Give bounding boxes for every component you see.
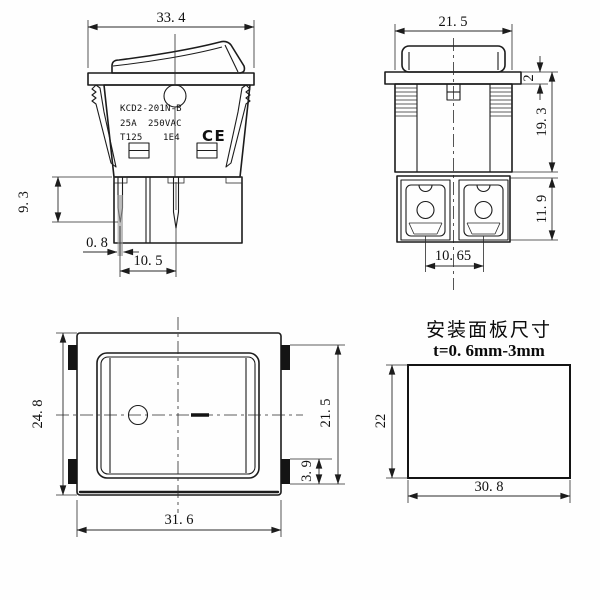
side-view: 33. 4 KCD2-201N-B 25A 250VAC T125 1E4 CE — [16, 10, 254, 277]
dim-top-height: 24. 8 — [30, 400, 46, 429]
terminal-height-dimension: 11. 9 — [510, 178, 558, 240]
top-view: 24. 8 31. 6 21. 5 3. 9 — [30, 317, 345, 537]
center-terminal-pin — [174, 177, 179, 277]
panel-cutout-rect — [408, 365, 570, 478]
side-body — [104, 85, 250, 177]
body-height-dimension: 19. 3 — [512, 72, 558, 172]
top-width-dimension: 31. 6 — [77, 500, 281, 537]
terminal-block-right — [459, 180, 508, 240]
dim-pin-length: 9. 3 — [16, 191, 32, 213]
dim-top-width: 31. 6 — [165, 512, 194, 528]
dim-pin-width: 0. 8 — [86, 235, 108, 251]
side-flange — [88, 73, 254, 85]
cutout-height-dimension: 22 — [373, 365, 408, 478]
marking-model: KCD2-201N-B — [120, 104, 182, 114]
rocker-switch-drawing: 33. 4 KCD2-201N-B 25A 250VAC T125 1E4 CE — [0, 0, 600, 600]
dim-terminal-pitch: 10. 65 — [435, 248, 471, 264]
panel-title: 安装面板尺寸 — [426, 319, 552, 341]
rocker-actuator-side — [112, 41, 244, 73]
dim-side-width: 33. 4 — [157, 10, 187, 26]
dim-cutout-width: 30. 8 — [475, 479, 504, 495]
dim-body-height: 19. 3 — [534, 108, 550, 137]
marking-temp: T125 — [120, 133, 142, 143]
marking-current: 25A — [120, 119, 137, 129]
dim-tab-height: 3. 9 — [299, 460, 315, 482]
tab-height-dimension: 3. 9 — [290, 459, 332, 484]
terminal-windows — [129, 143, 217, 158]
terminal-block-left — [401, 180, 450, 240]
front-flange — [385, 72, 521, 84]
panel-thickness: t=0. 6mm-3mm — [433, 341, 545, 360]
panel-cutout-view: 安装面板尺寸 t=0. 6mm-3mm 22 30. 8 — [373, 319, 570, 503]
side-width-dimension: 33. 4 — [88, 10, 254, 68]
dim-front-width: 21. 5 — [439, 14, 468, 30]
pin-pitch-dimension: 10. 5 — [120, 226, 176, 277]
dim-flange-thickness: 2 — [521, 74, 537, 81]
front-view: 21. 5 — [385, 14, 558, 290]
technical-drawing-page: 33. 4 KCD2-201N-B 25A 250VAC T125 1E4 CE — [0, 0, 600, 600]
body-markings: KCD2-201N-B 25A 250VAC T125 1E4 CE — [120, 104, 226, 145]
marking-voltage: 250VAC — [148, 119, 182, 129]
pin-length-dimension: 9. 3 — [16, 177, 118, 222]
dim-cutout-height: 22 — [373, 414, 389, 429]
ce-mark: CE — [202, 127, 226, 145]
dim-pin-pitch: 10. 5 — [134, 253, 163, 269]
dim-tab-span: 21. 5 — [318, 399, 334, 428]
dim-terminal-height: 11. 9 — [534, 195, 550, 223]
cutout-width-dimension: 30. 8 — [408, 479, 570, 503]
marking-code: 1E4 — [163, 133, 180, 143]
